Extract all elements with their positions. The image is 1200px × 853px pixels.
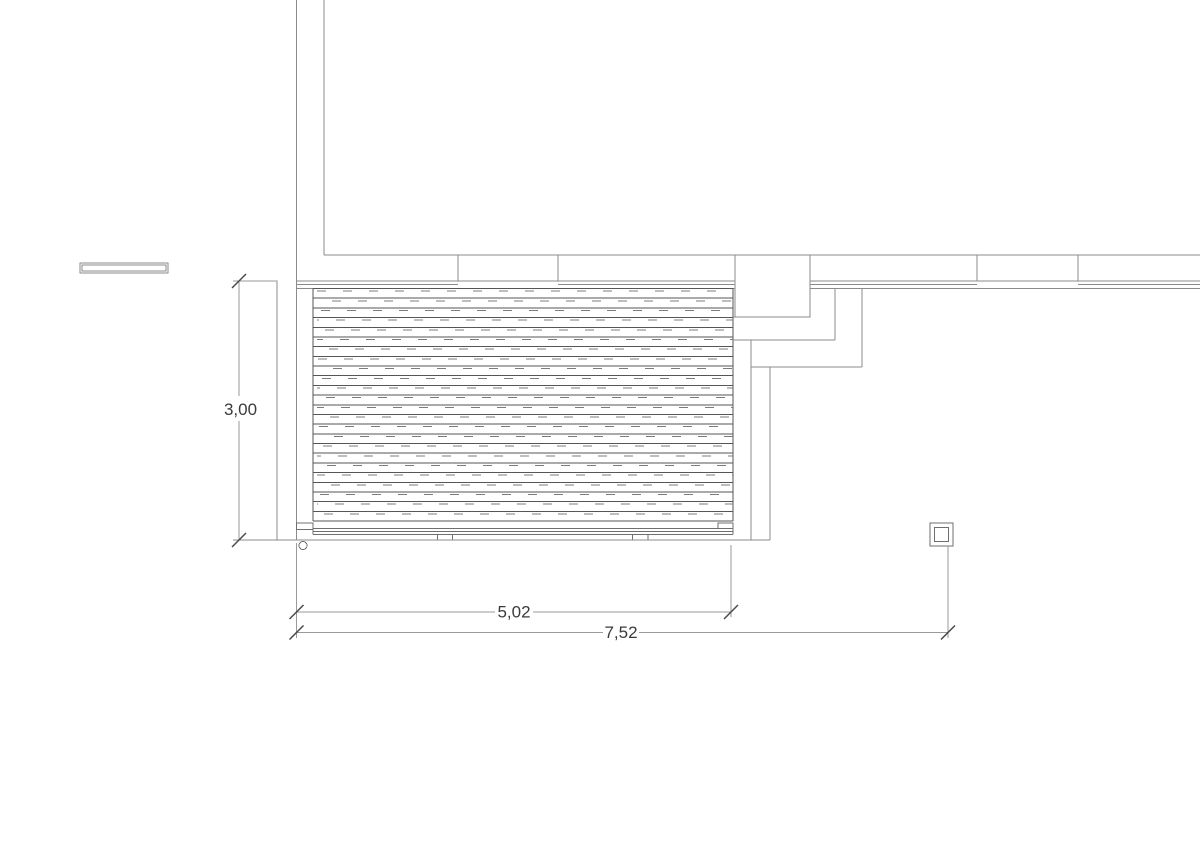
dimension-overall-width: 7,52 bbox=[290, 546, 956, 642]
dimension-deck-depth: 3,00 bbox=[224, 274, 277, 547]
wall-column-block bbox=[735, 255, 810, 317]
plan-canvas: 3,00 5,02 7,52 bbox=[0, 0, 1200, 853]
board-inner bbox=[82, 265, 166, 271]
dimension-label-deck-width: 5,02 bbox=[497, 603, 530, 622]
wall-pier bbox=[977, 255, 1078, 281]
post-inner bbox=[935, 528, 949, 542]
post-outer bbox=[930, 523, 953, 546]
dimension-deck-width: 5,02 bbox=[290, 543, 739, 638]
deck bbox=[233, 281, 770, 550]
house-wall bbox=[297, 0, 1200, 540]
deck-corner-notch bbox=[718, 523, 733, 529]
terrace-plan-drawing: 3,00 5,02 7,52 bbox=[0, 0, 1200, 853]
deck-corner-notch bbox=[297, 523, 314, 530]
deck-steps-right bbox=[733, 289, 862, 541]
dimension-label-deck-depth: 3,00 bbox=[224, 400, 257, 419]
deck-planks bbox=[313, 289, 733, 522]
wall-pier bbox=[458, 255, 558, 281]
dimension-label-overall-width: 7,52 bbox=[604, 623, 637, 642]
detached-board bbox=[80, 263, 168, 273]
downpipe-symbol bbox=[299, 542, 307, 550]
post-symbol bbox=[930, 523, 953, 546]
